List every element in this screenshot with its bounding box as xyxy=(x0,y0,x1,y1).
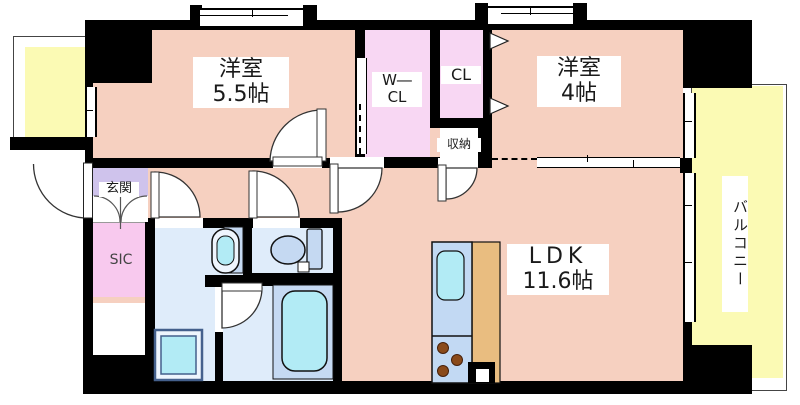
wall-toilet-bottom xyxy=(243,273,342,286)
pipe-space xyxy=(93,303,148,355)
opening-ldk-door xyxy=(330,157,384,168)
bedroom1-side-window xyxy=(85,87,97,137)
wall-block-bottom-right xyxy=(683,345,752,393)
opening-washroom-door xyxy=(155,218,203,228)
walk-in-closet-label: W― CL xyxy=(372,72,422,107)
wall-cl-bottom xyxy=(430,118,490,128)
alcove-floor xyxy=(25,47,85,137)
wall-wash-toilet xyxy=(243,218,252,277)
wall-slide-right-end xyxy=(680,158,692,173)
closet-label: CL xyxy=(441,66,481,84)
balcony-label: バルコニー xyxy=(722,176,748,312)
wall-block-top-left xyxy=(85,20,152,83)
ldk-label: LDK 11.6帖 xyxy=(507,244,609,295)
bedroom1-label: 洋室 5.5帖 xyxy=(193,57,289,108)
entrance-door-swing xyxy=(34,163,93,218)
washroom-floor-upper xyxy=(155,225,243,278)
bedroom1-window xyxy=(200,8,303,28)
window1-cap-right xyxy=(303,5,317,30)
wall-bottom xyxy=(83,381,752,394)
wall-wcl-cl xyxy=(430,28,440,128)
floor-plan: 洋室 5.5帖 洋室 4帖 LDK 11.6帖 W― CL CL 収納 玄関 S… xyxy=(0,0,800,405)
shoe-closet-label: SIC xyxy=(100,252,142,268)
wall-right-small xyxy=(683,322,692,345)
toilet-floor xyxy=(252,225,333,274)
window2-cap-left xyxy=(475,3,488,28)
bedroom2-balcony-window xyxy=(683,93,696,158)
wall-left-bar xyxy=(10,137,88,150)
entrance-label: 玄関 xyxy=(99,182,139,197)
bathroom-floor xyxy=(222,285,333,381)
bedroom2-ldk-open-dashed xyxy=(492,158,537,160)
opening-bedroom1-door xyxy=(273,158,322,168)
entrance-step-line xyxy=(93,220,145,223)
wall-block-top-right xyxy=(683,20,752,88)
opening-toilet-door xyxy=(253,218,300,228)
balcony-floor-lower xyxy=(750,345,783,378)
bedroom2-label: 洋室 4帖 xyxy=(537,56,621,107)
bedroom2-window xyxy=(488,6,573,26)
washroom-floor-lower xyxy=(155,277,222,381)
opening-storage-door xyxy=(438,158,478,168)
wall-wash-bath-lower xyxy=(215,332,223,382)
window2-cap-right xyxy=(573,3,587,28)
ldk-balcony-window xyxy=(683,173,696,322)
wall-ldk-left xyxy=(333,218,342,383)
bedroom1-wcl-slider xyxy=(356,58,367,154)
opening-bath-door xyxy=(215,287,223,332)
bedroom2-ldk-slider xyxy=(537,157,680,168)
wall-top xyxy=(85,20,690,30)
wall-wash-bath-top xyxy=(205,275,250,287)
storage-label: 収納 xyxy=(437,138,481,152)
